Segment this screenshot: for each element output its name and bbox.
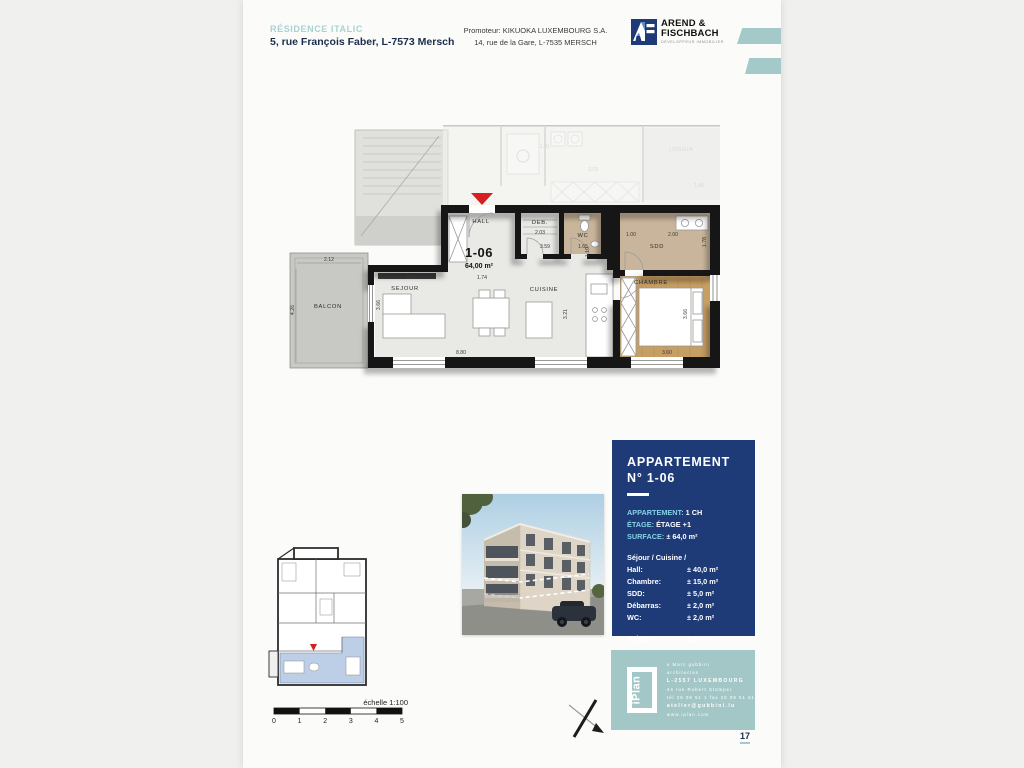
architect-contact: e Marc gubbini architectes L-2557 LUXEMB… xyxy=(667,661,755,719)
architect-line1: e Marc gubbini xyxy=(667,661,755,669)
dim-sdd-b: 2.00 xyxy=(668,232,678,238)
promoter-block: Promoteur: KIKUOKA LUXEMBOURG S.A. 14, r… xyxy=(448,25,623,48)
spec-apartment: APPARTEMENT: 1 CH xyxy=(627,507,740,519)
scale-tick-3: 3 xyxy=(349,718,353,725)
room-label-deb: DEB. xyxy=(532,220,548,226)
dim-deb: 2.03 xyxy=(535,230,545,236)
dim-balcon-w: 2.12 xyxy=(324,257,334,263)
dim-balcon-h: 4.26 xyxy=(290,305,296,315)
room-wc-value: ± 2,0 m² xyxy=(687,612,740,624)
room-surface-list: Séjour / Cuisine / Hall: ± 40,0 m² Chamb… xyxy=(627,552,740,645)
architect-line5: tél 26 09 51 1 fax 26 09 51 51 xyxy=(667,694,755,702)
developer-tagline: DÉVELOPPEUR IMMOBILIER xyxy=(661,40,724,44)
scale-tick-1: 1 xyxy=(298,718,302,725)
room-row-balcon: Balcon: ± 9,0 m² xyxy=(627,633,740,645)
dim-bottom: 8.80 xyxy=(456,350,466,356)
scale-tick-0: 0 xyxy=(272,718,276,725)
promoter-line1: Promoteur: KIKUOKA LUXEMBOURG S.A. xyxy=(448,25,623,37)
dim-corridor-v: 1.10 xyxy=(585,247,591,257)
developer-name-line2: FISCHBACH xyxy=(661,29,724,39)
room-label-sdd: SDD xyxy=(650,244,664,250)
architect-line4: 44 rue Robert Stümper xyxy=(667,686,755,694)
room-wc-label: WC: xyxy=(627,612,687,624)
panel-divider xyxy=(627,493,649,496)
room-hall-value: ± 40,0 m² xyxy=(687,564,740,576)
room-label-balcon: BALCON xyxy=(314,304,342,310)
north-arrow-icon xyxy=(563,695,609,743)
room-label-sejour: SEJOUR xyxy=(391,286,419,292)
dim-corridor: 3.59 xyxy=(540,244,550,250)
dim-cuisine-v: 3.21 xyxy=(563,309,569,319)
room-hall-label: Hall: xyxy=(627,564,687,576)
brochure-page: RÉSIDENCE ITALIC 5, rue François Faber, … xyxy=(243,0,781,768)
floor-plan: LOGGIA 3.19 1.80 1.91 xyxy=(283,124,723,386)
spec-surface: SURFACE: ± 64,0 m² xyxy=(627,531,740,543)
room-sdd-label: SDD: xyxy=(627,588,687,600)
architect-line3: L-2557 LUXEMBOURG xyxy=(667,677,755,686)
panel-title-line2: N° 1-06 xyxy=(627,471,740,487)
residence-name: RÉSIDENCE ITALIC xyxy=(270,24,454,34)
spec-etage-label: ÉTAGE: xyxy=(627,520,654,529)
decor-bar-1 xyxy=(737,28,781,44)
room-debarras-label: Débarras: xyxy=(627,600,687,612)
dim-chambre-bottom: 3.60 xyxy=(662,350,672,356)
dim-hall-top: 1.74 xyxy=(477,275,487,281)
panel-title: APPARTEMENT N° 1-06 xyxy=(627,455,740,486)
room-debarras-value: ± 2,0 m² xyxy=(687,600,740,612)
af-monogram-icon xyxy=(631,19,657,45)
spec-surface-value: ± 64,0 m² xyxy=(666,532,697,541)
room-balcon-value: ± 9,0 m² xyxy=(687,633,740,645)
room-row-debarras: Débarras: ± 2,0 m² xyxy=(627,600,740,612)
header-left: RÉSIDENCE ITALIC 5, rue François Faber, … xyxy=(270,24,454,48)
page-number-underline xyxy=(740,742,750,744)
promoter-line2: 14, rue de la Gare, L-7535 MERSCH xyxy=(448,37,623,49)
room-row-hall: Hall: ± 40,0 m² xyxy=(627,564,740,576)
spec-etage: ÉTAGE: ÉTAGE +1 xyxy=(627,519,740,531)
room-sdd-value: ± 5,0 m² xyxy=(687,588,740,600)
scale-bar: échelle 1:100 0 1 2 3 4 5 xyxy=(272,698,414,726)
dim-chambre-right: 3.66 xyxy=(683,309,689,319)
room-label-wc: WC xyxy=(577,233,588,239)
dim-sejour-left: 3.66 xyxy=(376,300,382,310)
architect-line2: architectes xyxy=(667,669,755,677)
room-row-chambre: Chambre: ± 15,0 m² xyxy=(627,576,740,588)
panel-title-line1: APPARTEMENT xyxy=(627,455,740,471)
room-row-wc: WC: ± 2,0 m² xyxy=(627,612,740,624)
architect-box: iPlan e Marc gubbini architectes L-2557 … xyxy=(611,650,755,730)
spec-etage-value: ÉTAGE +1 xyxy=(656,520,691,529)
developer-name: AREND & FISCHBACH DÉVELOPPEUR IMMOBILIER xyxy=(661,19,724,44)
plan-unit-number: 1-06 xyxy=(465,245,493,260)
decor-bar-2 xyxy=(745,58,781,74)
architect-line7: www.iplan.com xyxy=(667,711,755,719)
developer-logo: AREND & FISCHBACH DÉVELOPPEUR IMMOBILIER xyxy=(631,19,724,45)
page-number-value: 17 xyxy=(740,731,750,741)
scale-tick-2: 2 xyxy=(323,718,327,725)
room-chambre-label: Chambre: xyxy=(627,576,687,588)
rooms-heading: Séjour / Cuisine / xyxy=(627,552,740,564)
scale-tick-5: 5 xyxy=(400,718,404,725)
building-photo xyxy=(462,494,604,635)
residence-address: 5, rue François Faber, L-7573 Mersch xyxy=(270,36,454,48)
plan-unit-area: 64,00 m² xyxy=(465,263,494,270)
spec-apartment-value: 1 CH xyxy=(686,508,703,517)
room-balcon-label: Balcon: xyxy=(627,633,687,645)
dim-sdd-a: 1.00 xyxy=(626,232,636,238)
iplan-logo-text: iPlan xyxy=(630,676,642,705)
room-label-chambre: CHAMBRE xyxy=(634,280,668,286)
apartment-info-panel: APPARTEMENT N° 1-06 APPARTEMENT: 1 CH ÉT… xyxy=(612,440,755,636)
room-label-cuisine: CUISINE xyxy=(530,287,558,293)
page-number: 17 xyxy=(740,731,750,744)
key-plan xyxy=(268,545,373,693)
iplan-logo: iPlan xyxy=(627,667,657,713)
room-chambre-value: ± 15,0 m² xyxy=(687,576,740,588)
spec-surface-label: SURFACE: xyxy=(627,532,664,541)
dim-sejour-top: 3.47 xyxy=(406,275,416,281)
scale-tick-4: 4 xyxy=(374,718,378,725)
dim-sdd-right: 1.78 xyxy=(702,237,708,247)
room-row-sdd: SDD: ± 5,0 m² xyxy=(627,588,740,600)
architect-line6: atelier@gubbini.lu xyxy=(667,702,755,711)
scale-label: échelle 1:100 xyxy=(363,698,408,707)
spec-apartment-label: APPARTEMENT: xyxy=(627,508,684,517)
brochure-canvas: { "header": { "residence_name": "RÉSIDEN… xyxy=(0,0,1024,768)
room-label-hall: HALL xyxy=(472,219,489,225)
